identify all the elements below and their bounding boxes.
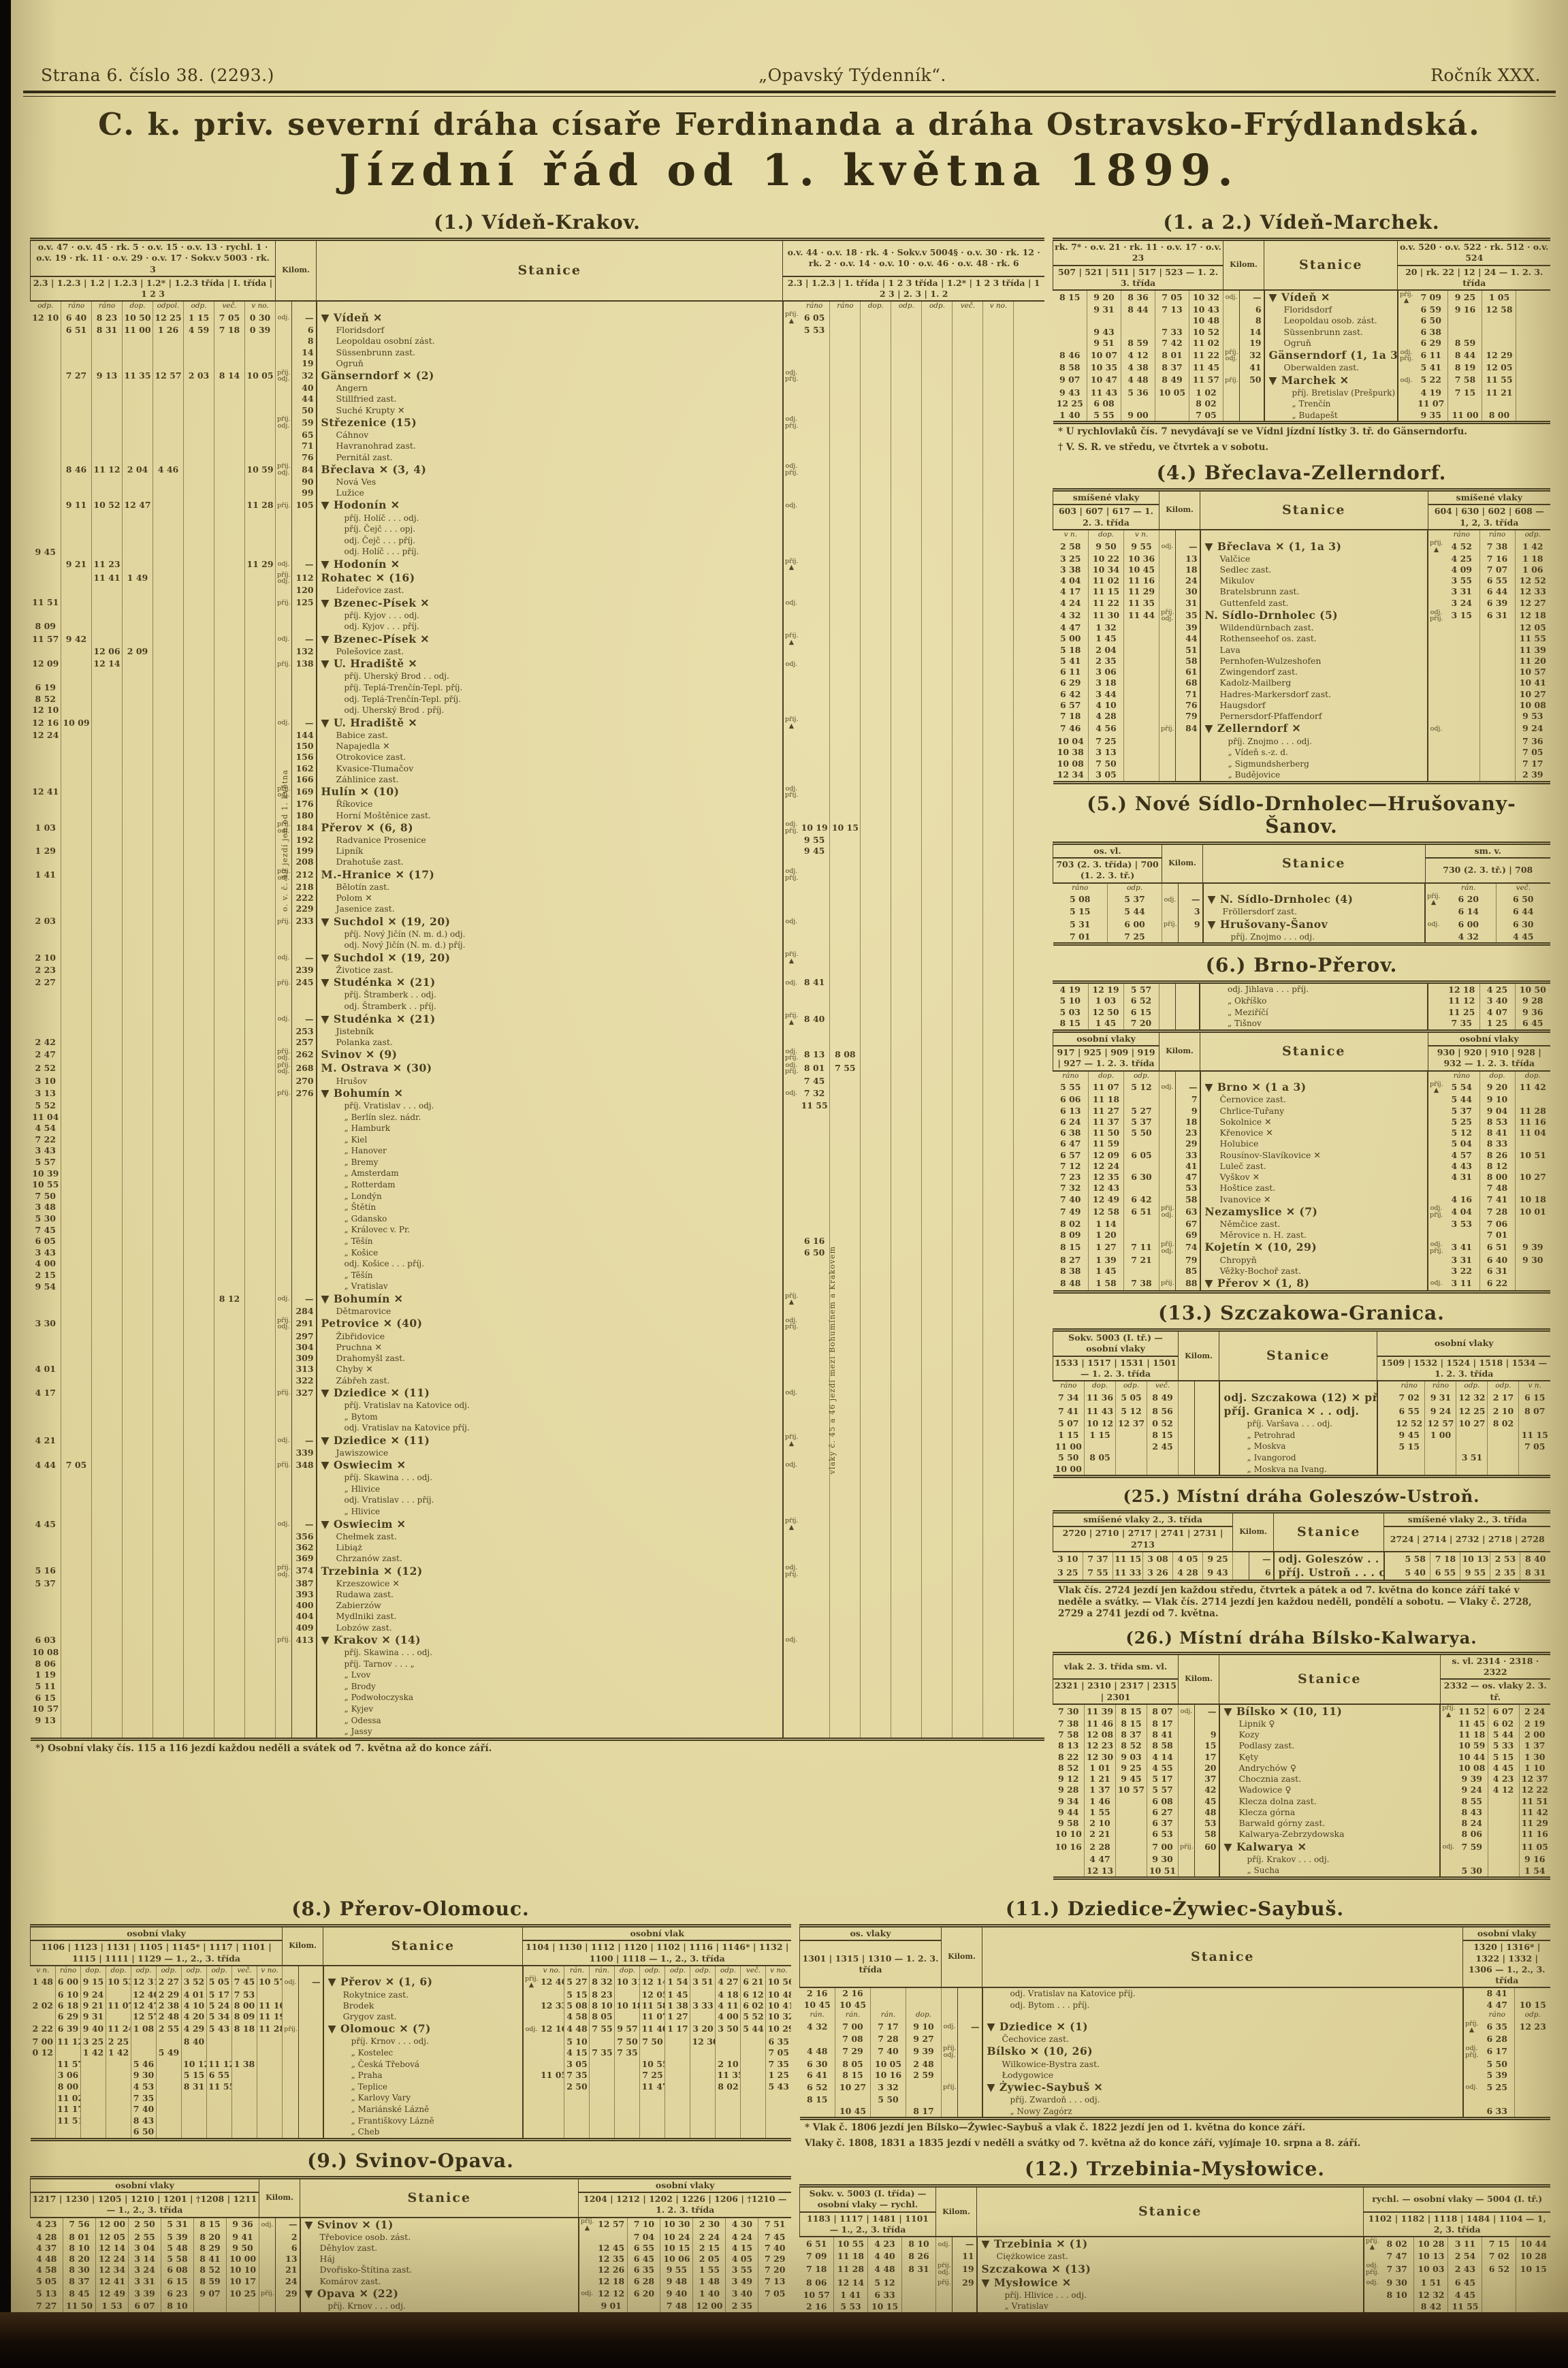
time-cell [799, 1472, 830, 1484]
station-name: Střezenice (15) [321, 416, 417, 429]
arrival-departure-marker: příj. odj. [276, 369, 292, 383]
time-cell [214, 785, 245, 799]
time-cell: 12 49 [1089, 1194, 1124, 1205]
time-cell: 2 04 [123, 463, 153, 477]
time-cell [92, 915, 123, 929]
time-cell [983, 1703, 1014, 1715]
time-cell [31, 585, 61, 596]
arrival-departure-marker [276, 1342, 292, 1353]
time-cell [245, 416, 276, 430]
time-cell [1444, 689, 1479, 700]
time-cell [184, 1447, 214, 1458]
time-cell: 11 55 [799, 1100, 830, 1112]
arrival-departure-marker: odj. [1179, 1704, 1195, 1718]
time-cell: 1 49 [123, 571, 153, 585]
time-cell [61, 1681, 92, 1693]
time-cell: 12 35 [1089, 1172, 1124, 1183]
time-cell [123, 1422, 153, 1434]
time-cell [184, 1633, 214, 1647]
time-cell [830, 441, 861, 451]
time-cell [157, 2104, 182, 2115]
time-cell [61, 1048, 92, 1061]
time-cell: 5 43 [766, 2081, 791, 2093]
time-cell [153, 1600, 184, 1611]
time-cell: 12 32 [1456, 1391, 1488, 1405]
station-row: „ Hlivice [31, 1506, 1045, 1518]
time-cell [922, 1213, 953, 1225]
time-cell: 5 50 [1124, 1127, 1159, 1138]
left-train-classes: 2321 | 2310 | 2317 | 2315 | 2301 [1053, 1679, 1179, 1704]
kilometre-cell: 58 [1176, 1194, 1200, 1205]
time-cell [153, 558, 184, 571]
time-cell [891, 1506, 922, 1518]
time-cell [922, 799, 953, 810]
time-cell [214, 835, 245, 846]
time-cell [61, 394, 92, 404]
time-cell [1488, 1430, 1519, 1441]
arrival-departure-marker: příj. ▲ [783, 311, 799, 325]
station-row: 6 423 4471Hadres-Markersdorf zast.10 27 [1053, 689, 1551, 700]
arrival-departure-marker [783, 989, 799, 1001]
left-train-classes: 1217 | 1230 | 1205 | 1210 | 1201 | †1208… [31, 2192, 259, 2218]
time-cell [184, 1134, 214, 1146]
time-cell [983, 774, 1014, 785]
kilometre-cell [292, 610, 317, 622]
kilometre-header: Kilom. [1162, 843, 1203, 882]
time-cell [983, 1553, 1014, 1564]
time-cell: 5 58 [1401, 1552, 1430, 1566]
kilometre-cell [1195, 1381, 1219, 1391]
time-cell [92, 868, 123, 882]
time-cell [61, 882, 92, 893]
station-cell: Libiąż [317, 1542, 783, 1553]
station-name: Trzebinia ✕ (12) [321, 1565, 423, 1578]
arrival-departure-marker [276, 1306, 292, 1317]
time-cell [1014, 633, 1044, 646]
time-cell [214, 1087, 245, 1100]
time-cell [922, 1306, 953, 1317]
time-cell [245, 546, 276, 558]
station-row: 4 54„ Hamburk [31, 1123, 1045, 1134]
arrival-departure-marker [579, 2232, 595, 2243]
time-cell: 8 58 [1147, 1740, 1179, 1751]
arrival-departure-marker [1428, 622, 1444, 633]
time-cell: 2 24 [1519, 1704, 1550, 1718]
time-cell [861, 394, 891, 404]
arrival-departure-marker: příj. ▲ [1364, 2237, 1380, 2251]
kilometre-cell [958, 2045, 982, 2058]
time-cell [123, 965, 153, 976]
station-name: odj. Nový Jičín (N. m. d.) příj. [321, 940, 466, 951]
time-cell [861, 646, 891, 657]
station-name: „ Londýn [321, 1191, 382, 1202]
time-cell: 12 29 [1482, 349, 1516, 362]
time-cell [153, 1703, 184, 1715]
time-cell: 4 23 [31, 2218, 63, 2232]
time-cell [983, 1236, 1014, 1247]
time-cell [153, 633, 184, 646]
time-cell: 4 28 [31, 2232, 63, 2243]
time-cell [123, 394, 153, 404]
time-cell: 7 05 [214, 311, 245, 325]
time-cell [92, 821, 123, 835]
time-cell [123, 774, 153, 785]
station-cell: Hadres-Markersdorf zast. [1200, 689, 1428, 700]
time-cell [153, 774, 184, 785]
time-cell [861, 1565, 891, 1578]
time-cell [245, 1506, 276, 1518]
time-cell [92, 358, 123, 369]
time-cell [184, 1531, 214, 1542]
time-cell [861, 1026, 891, 1037]
time-cell [1444, 769, 1479, 782]
time-cell: 5 31 [161, 2218, 194, 2232]
time-cell [799, 1703, 830, 1715]
time-cell [214, 1633, 245, 1647]
time-cell [214, 821, 245, 835]
time-cell [245, 1100, 276, 1112]
time-cell [31, 487, 61, 498]
time-cell [214, 705, 245, 716]
time-cell: 10 15 [660, 2243, 693, 2254]
arrival-departure-marker [783, 682, 799, 694]
time-cell [830, 1715, 861, 1727]
time-cell: 5 50 [1479, 2059, 1515, 2070]
station-cell: Havranohrad zast. [317, 441, 783, 451]
time-cell: 11 02 [1089, 575, 1124, 586]
time-cell [906, 2094, 942, 2106]
station-name: Lava [1205, 645, 1241, 656]
arrival-departure-marker [783, 1281, 799, 1292]
kilometre-cell: 404 [292, 1611, 317, 1622]
time-cell [861, 835, 891, 846]
time-cell [214, 347, 245, 358]
margin-note: vlaky č. 45 a 46 jezdí mezi Bohumínem a … [828, 1246, 837, 1474]
time-cell [1516, 304, 1550, 315]
station-name: Babice zast. [321, 730, 388, 741]
time-cell: 11 51 [56, 2115, 81, 2127]
time-cell [922, 1715, 953, 1727]
station-cell: Kozy [1219, 1729, 1440, 1740]
arrival-departure-marker [1428, 736, 1444, 748]
time-cell: 2 15 [693, 2243, 726, 2254]
time-cell: 8 06 [800, 2276, 834, 2290]
time-cell [953, 785, 983, 799]
time-cell: 6 11 [1053, 667, 1089, 677]
time-cell [92, 1224, 123, 1236]
time-cell [1014, 976, 1044, 989]
time-cell [1014, 383, 1044, 394]
kilometre-cell: 327 [292, 1386, 317, 1400]
time-cell: 6 42 [1053, 689, 1089, 700]
time-cell [1014, 358, 1044, 369]
time-cell: 5 43 [207, 2022, 232, 2036]
time-cell [1515, 2094, 1550, 2106]
time-cell: 9 30 [1515, 1255, 1550, 1266]
station-name: „ Kyjev [321, 1704, 374, 1715]
kilometre-cell [1195, 1418, 1219, 1430]
arrival-departure-marker: příj. odj. [276, 1048, 292, 1061]
time-cell [245, 857, 276, 867]
time-cell: 10 57 [257, 1975, 283, 1989]
time-cell [61, 1157, 92, 1168]
time-cell [184, 513, 214, 524]
arrival-departure-marker [1159, 1007, 1175, 1019]
time-cell: 7 50 [31, 1191, 61, 1202]
arrival-departure-marker [1377, 1418, 1394, 1430]
station-row: 5 0312 506 15„ Meziříčí11 254 079 36 [1053, 1007, 1550, 1019]
station-cell: Zabierzów [317, 1600, 783, 1611]
arrival-departure-marker [1428, 1106, 1444, 1117]
time-cell [92, 1123, 123, 1134]
time-cell: 8 15 [800, 2094, 835, 2106]
time-cell [799, 1600, 830, 1611]
station-name: Rokytnice zast. [328, 1989, 409, 2000]
time-cell: odp. [157, 1966, 182, 1976]
station-row: 322Zábřeh zast. [31, 1375, 1045, 1386]
station-cell: „ Hlivice [317, 1484, 783, 1495]
station-cell: příj. Nový Jičín (N. m. d.) odj. [317, 929, 783, 940]
time-cell: 12 34 [1053, 769, 1089, 782]
time-cell [92, 1447, 123, 1458]
arrival-departure-marker [783, 646, 799, 657]
time-cell [61, 1331, 92, 1342]
time-cell [861, 893, 891, 903]
kilometre-cell: 413 [292, 1633, 317, 1647]
station-name: Chocznia zast. [1224, 1774, 1302, 1785]
time-cell: 12 16 [539, 2022, 564, 2036]
station-name: Lobzów zast. [321, 1622, 392, 1633]
time-cell [153, 1112, 184, 1123]
time-cell: 8 58 [1053, 362, 1087, 373]
time-cell: 7 25 [1089, 736, 1124, 748]
time-cell [214, 1281, 245, 1292]
time-cell [214, 596, 245, 610]
station-row: 10 162 287 00příj.60▼ Kalwarya ✕odj.7 59… [1053, 1840, 1551, 1854]
time-cell: 5 12 [868, 2276, 902, 2290]
time-cell: 12 57 [1425, 1418, 1456, 1430]
arrival-departure-marker [276, 1703, 292, 1715]
time-cell [61, 452, 92, 463]
time-cell [92, 477, 123, 487]
time-cell [830, 487, 861, 498]
station-name: ▼ Přerov ✕ (1, 6) [328, 1975, 433, 1988]
time-cell [184, 1611, 214, 1622]
time-cell [922, 1447, 953, 1458]
right-train-classes: 2724 | 2714 | 2732 | 2718 | 2728 [1384, 1526, 1550, 1552]
footnote: * U rychlovlaků čís. 7 nevydávají se ve … [1058, 426, 1545, 438]
time-cell [799, 1306, 830, 1317]
time-cell [123, 1726, 153, 1739]
time-cell: 8 07 [1519, 1405, 1550, 1418]
time-cell: 10 28 [1516, 2251, 1550, 2262]
time-cell [1014, 1342, 1044, 1353]
time-cell [1014, 1411, 1044, 1423]
time-cell [1488, 1464, 1519, 1477]
station-cell: N. Sídlo-Drnholec (5) [1200, 609, 1428, 622]
station-name: Polešovice zast. [321, 646, 404, 657]
time-cell: 6 00 [1108, 918, 1162, 931]
time-cell: 4 24 [1053, 598, 1089, 609]
time-cell [799, 1715, 830, 1727]
time-cell: 11 55 [1482, 374, 1516, 387]
time-cell: 6 55 [207, 2070, 232, 2081]
time-cell: 3 25 [1053, 554, 1089, 564]
bottom-left-column: (8.) Přerov-Olomouc.osobní vlakyKilom.St… [30, 1889, 791, 2314]
time-cell [61, 1100, 92, 1112]
kilometre-cell: 21 [276, 2265, 300, 2275]
time-cell [153, 1037, 184, 1048]
time-cell: 11 29 [1124, 586, 1159, 597]
time-cell [983, 1375, 1014, 1386]
timetable: osobní vlakyKilom.Staniceosobní vlaky121… [30, 2176, 791, 2314]
kilometre-cell [292, 1112, 317, 1123]
time-cell [245, 694, 276, 705]
time-cell [61, 774, 92, 785]
arrival-departure-marker: odj. [1440, 1840, 1456, 1854]
time-cell [1014, 621, 1044, 633]
time-cell [1014, 903, 1044, 914]
kilometre-cell: 74 [1176, 1241, 1200, 1254]
time-cell [1479, 769, 1515, 782]
time-cell [245, 513, 276, 524]
time-cell [1116, 1441, 1147, 1452]
time-cell: 3 05 [564, 2059, 590, 2070]
time-cell: 9 31 [1425, 1391, 1456, 1405]
time-cell [123, 741, 153, 752]
station-name: ▼ Suchdol ✕ (19, 20) [321, 951, 451, 964]
station-cell [982, 2011, 1463, 2020]
time-cell [861, 633, 891, 646]
station-name: M.-Hranice ✕ (17) [321, 868, 435, 881]
kilometre-cell: 20 [1195, 1763, 1219, 1774]
time-cell: 4 05 [1173, 1552, 1203, 1566]
arrival-departure-marker: příj. ▲ [1428, 1081, 1444, 1094]
kilometre-cell [292, 1134, 317, 1146]
time-cell [153, 1087, 184, 1100]
arrival-departure-marker [1223, 387, 1240, 399]
time-cell [953, 336, 983, 347]
time-cell: 9 15 [81, 1975, 106, 1989]
station-cell: Krzeszowice ✕ [317, 1578, 783, 1589]
time-cell [830, 1633, 861, 1647]
time-cell [922, 882, 953, 893]
time-cell: 11 36 [1085, 1391, 1116, 1405]
time-cell [245, 1112, 276, 1123]
time-cell [891, 1484, 922, 1495]
time-cell [922, 1472, 953, 1484]
kilometre-cell [1176, 769, 1200, 782]
time-cell [92, 741, 123, 752]
station-row: 1 405 559 007 05„ Budapešt9 3511 008 00 [1053, 410, 1551, 423]
time-cell [1155, 315, 1189, 326]
time-cell [983, 1565, 1014, 1578]
time-cell [92, 416, 123, 430]
arrival-departure-marker [783, 1364, 799, 1375]
station-row: příj. Kyjov . . . odj. [31, 610, 1045, 622]
margin-note: o. v. č. 49 jezdí jen od 1. května [281, 769, 289, 912]
time-cell [891, 347, 922, 358]
station-name: příj. Krakov . . . odj. [1224, 1855, 1330, 1866]
time-cell: 12 08 [1085, 1729, 1116, 1740]
time-cell: 5 44 [1108, 906, 1162, 917]
time-cell [922, 1434, 953, 1447]
arrival-departure-marker [783, 394, 799, 404]
time-cell: 1 46 [1085, 1796, 1116, 1807]
time-cell [92, 1484, 123, 1495]
time-cell [953, 810, 983, 821]
time-cell [245, 477, 276, 487]
time-cell: 4 48 [1121, 374, 1155, 387]
station-name: „ Štětín [321, 1202, 377, 1213]
time-cell [214, 951, 245, 965]
time-cell [61, 347, 92, 358]
time-cell [123, 868, 153, 882]
time-cell [983, 416, 1014, 430]
kilometre-cell [292, 1506, 317, 1518]
time-cell: 6 29 [1053, 677, 1089, 688]
station-row: 4 447 05příj.348▼ Oswiecim ✕odj. [31, 1458, 1045, 1472]
time-cell [1124, 1266, 1159, 1277]
station-cell: Svinov ✕ (9) [317, 1048, 783, 1061]
time-cell [799, 882, 830, 893]
arrival-departure-marker [283, 1966, 299, 1976]
time-cell: 12 43 [1089, 1183, 1124, 1194]
time-cell: 2 35 [1089, 656, 1124, 667]
time-cell [861, 1258, 891, 1270]
time-cell [92, 763, 123, 774]
time-cell [891, 336, 922, 347]
time-cell [1014, 821, 1044, 835]
station-row: 90Nová Ves [31, 477, 1045, 487]
time-cell [92, 1553, 123, 1564]
time-cell: 7 18 [800, 2262, 834, 2276]
time-cell [891, 1659, 922, 1670]
timetable-section-szczakowa-granica: (13.) Szczakowa-Granica.Sokv. 5003 (I. t… [1053, 1302, 1550, 1478]
time-cell [830, 976, 861, 989]
arrival-departure-marker [276, 1422, 292, 1434]
left-train-classes: 1106 | 1123 | 1131 | 1105 | 1145* | 1117… [31, 1940, 283, 1966]
time-cell [61, 1292, 92, 1306]
station-name: Gänserndorf ✕ (2) [321, 369, 434, 382]
time-cell: 9 55 [1460, 1566, 1490, 1582]
time-cell [716, 2126, 741, 2139]
time-cell [1488, 1818, 1519, 1829]
kilometre-cell [292, 621, 317, 633]
time-cell [31, 394, 61, 404]
time-cell: 4 15 [564, 2047, 590, 2059]
kilometre-cell [292, 1494, 317, 1506]
arrival-departure-marker [276, 1600, 292, 1611]
time-cell [123, 705, 153, 716]
time-cell [31, 2126, 56, 2139]
kilometre-cell: 13 [276, 2254, 300, 2265]
time-cell [891, 585, 922, 596]
time-cell: 11 20 [1515, 656, 1550, 667]
time-cell [830, 1123, 861, 1134]
station-name: příj. Teplá-Trenčín-Tepl. příj. [321, 683, 463, 694]
time-cell: 12 57 [131, 2011, 157, 2022]
arrival-departure-marker [1179, 1796, 1195, 1807]
time-cell [891, 558, 922, 571]
arrival-departure-marker: příj. [276, 1633, 292, 1647]
time-cell [61, 1087, 92, 1100]
time-cell: 3 32 [871, 2081, 906, 2094]
arrival-departure-marker [1159, 995, 1175, 1007]
time-cell [983, 1026, 1014, 1037]
time-cell [861, 524, 891, 535]
time-cell [245, 951, 276, 965]
